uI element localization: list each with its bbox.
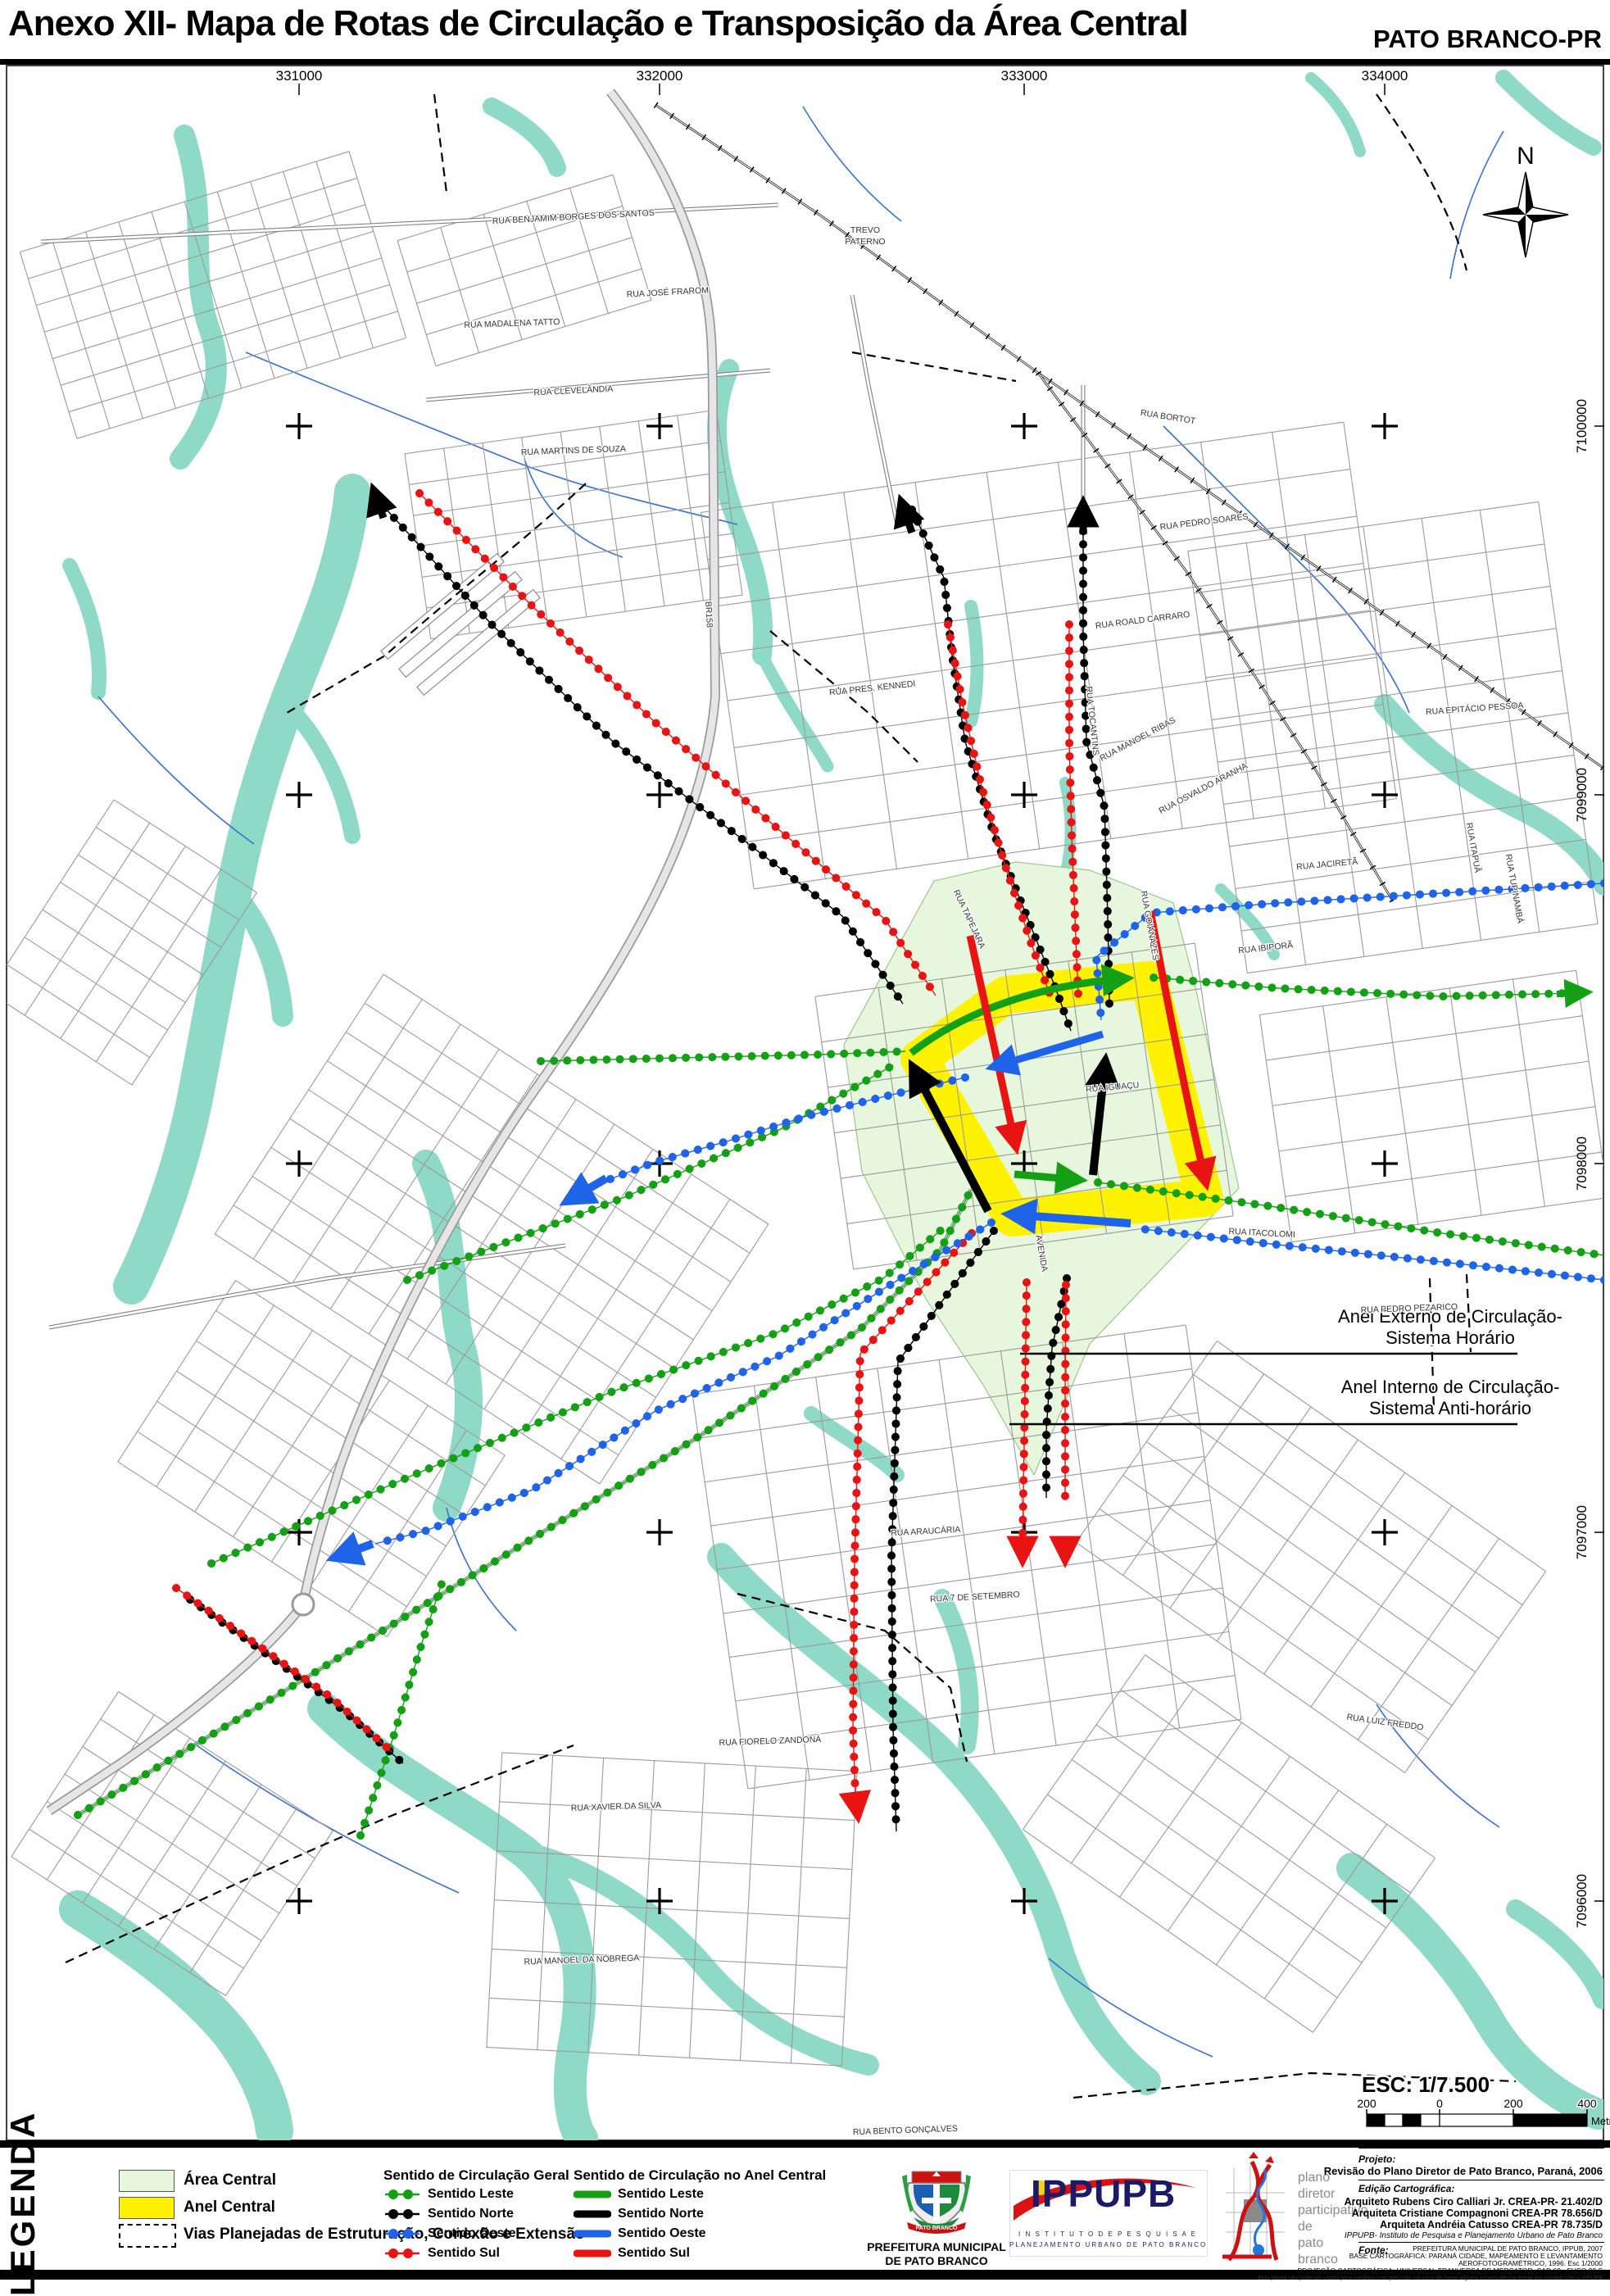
- grid-y-label: 7098000: [1574, 1137, 1590, 1191]
- scalebar-segment: [1367, 2114, 1385, 2126]
- credits-panel: Projeto: Revisão do Plano Diretor de Pat…: [1358, 2147, 1604, 2270]
- divider: [1358, 2180, 1604, 2180]
- grid-y-label: 7097000: [1574, 1505, 1590, 1559]
- scalebar-segment: [1385, 2114, 1403, 2126]
- grid-x-label: 331000: [276, 68, 323, 84]
- legend-general-3-glyph: [383, 2247, 421, 2260]
- legend-anel-3-glyph: [574, 2247, 611, 2260]
- north-label: N: [1517, 143, 1535, 170]
- map-canvas: Anel Externo de Circulação-Sistema Horár…: [0, 0, 1610, 2280]
- legend-swatch-vias-planejadas: [119, 2224, 176, 2248]
- prefeitura-name-line1: PREFEITURA MUNICIPAL: [859, 2240, 1014, 2253]
- grid-y-label: 7099000: [1574, 768, 1590, 822]
- legend-header-anel: Sentido de Circulação no Anel Central: [574, 2167, 826, 2184]
- annotation-1: Anel Interno de Circulação-: [1341, 1377, 1560, 1397]
- legend-anel-2-glyph: [574, 2227, 611, 2240]
- scalebar-label: 200: [1357, 2097, 1376, 2110]
- legend-swatch-anel-central: [119, 2197, 175, 2219]
- legend-label-area-central: Área Central: [184, 2171, 276, 2189]
- prefeitura-name-line2: DE PATO BRANCO: [859, 2254, 1014, 2267]
- legend-general-0-glyph: [383, 2188, 421, 2201]
- grid-x-label: 332000: [637, 68, 683, 84]
- legend-anel-0-label: Sentido Leste: [618, 2187, 704, 2202]
- legend-swatch-area-central: [119, 2170, 175, 2192]
- legend-general-1-label: Sentido Norte: [428, 2207, 514, 2221]
- projeto-value: Revisão do Plano Diretor de Pato Branco,…: [1324, 2165, 1603, 2177]
- grid-x-label: 333000: [1001, 68, 1048, 84]
- scalebar-segment: [1403, 2114, 1421, 2126]
- annotation-0: Sistema Horário: [1386, 1327, 1515, 1348]
- street-label: PATERNO: [845, 237, 885, 247]
- edicao-line-1: Arquiteto Rubens Ciro Calliari Jr. CREA-…: [1345, 2196, 1603, 2208]
- legend-anel-1-glyph: [574, 2208, 611, 2221]
- map-sheet: { "header": { "title": "Anexo XII- Mapa …: [0, 0, 1610, 2280]
- annotation-1: Sistema Anti-horário: [1369, 1398, 1531, 1418]
- scalebar-segment: [1513, 2114, 1587, 2126]
- scalebar-unit: Metros: [1591, 2115, 1610, 2127]
- legend-general-3-label: Sentido Sul: [428, 2246, 500, 2261]
- legend-title: LEGENDA: [3, 2149, 43, 2296]
- plano-diretor-logo: [1219, 2152, 1297, 2267]
- edicao-label: Edição Cartográfica:: [1358, 2183, 1454, 2194]
- legend-general-2-glyph: [383, 2227, 421, 2240]
- legend-anel-0-glyph: [574, 2188, 611, 2201]
- scalebar-label: 200: [1503, 2097, 1523, 2110]
- legend-general-0-label: Sentido Leste: [428, 2187, 514, 2202]
- scalebar-label: 0: [1436, 2097, 1443, 2110]
- ippupb-subtitle-2: PLANEJAMENTO URBANO DE PATO BRANCO: [1009, 2241, 1206, 2248]
- ippupb-name: IPPUPB: [1031, 2171, 1176, 2216]
- legend-general-2-label: Sentido Oeste: [428, 2226, 516, 2241]
- scalebar-segment: [1421, 2114, 1440, 2126]
- grid-y-label: 7100000: [1574, 399, 1590, 453]
- divider: [1358, 2242, 1604, 2243]
- projeto-label: Projeto:: [1358, 2153, 1395, 2165]
- scale-text: ESC: 1/7.500: [1362, 2072, 1490, 2097]
- legend-anel-2-label: Sentido Oeste: [618, 2226, 706, 2241]
- street-label: TREVO: [850, 225, 880, 235]
- svg-text:PATO BRANCO: PATO BRANCO: [916, 2226, 959, 2231]
- scalebar-segment: [1440, 2114, 1513, 2126]
- legend-anel-1-label: Sentido Norte: [618, 2207, 704, 2221]
- edicao-line-3: Arquiteta Andréia Catusso CREA-PR 78.735…: [1380, 2219, 1603, 2230]
- grid-x-label: 334000: [1362, 68, 1408, 84]
- ippupb-note: IPPUPB- Instituto de Pesquisa e Planejam…: [1345, 2231, 1603, 2240]
- prefeitura-logo: PATO BRANCO: [897, 2152, 976, 2239]
- edicao-line-2: Arquiteta Cristiane Compagnoni CREA-PR 7…: [1352, 2208, 1603, 2219]
- legend-label-anel-central: Anel Central: [184, 2198, 275, 2217]
- legend-anel-3-label: Sentido Sul: [618, 2246, 690, 2261]
- disclaimer: Esta planta não pode ser usada para medi…: [1258, 2276, 1603, 2281]
- street-label: BR158: [703, 601, 714, 628]
- grid-y-label: 7096000: [1574, 1874, 1590, 1928]
- legend-header-geral: Sentido de Circulação Geral: [383, 2167, 569, 2184]
- legend-general-1-glyph: [383, 2208, 421, 2221]
- scalebar-label: 400: [1577, 2097, 1597, 2110]
- fonte-line-4: PROJEÇÃO CARTOGRÁFICA: UNIVERSAL TRANVER…: [1297, 2267, 1603, 2275]
- ippupb-subtitle-1: I N S T I T U T O D E P E S Q U I S A E: [1009, 2230, 1206, 2238]
